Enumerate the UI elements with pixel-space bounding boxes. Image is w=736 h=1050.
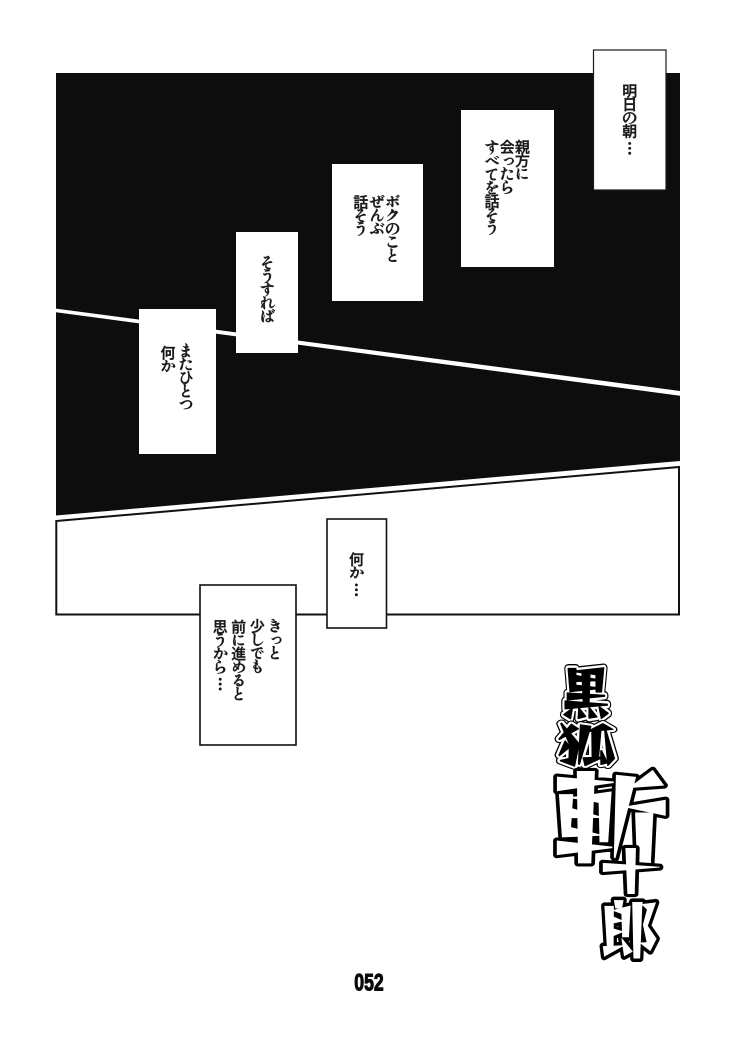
svg-text:052: 052	[354, 969, 383, 997]
